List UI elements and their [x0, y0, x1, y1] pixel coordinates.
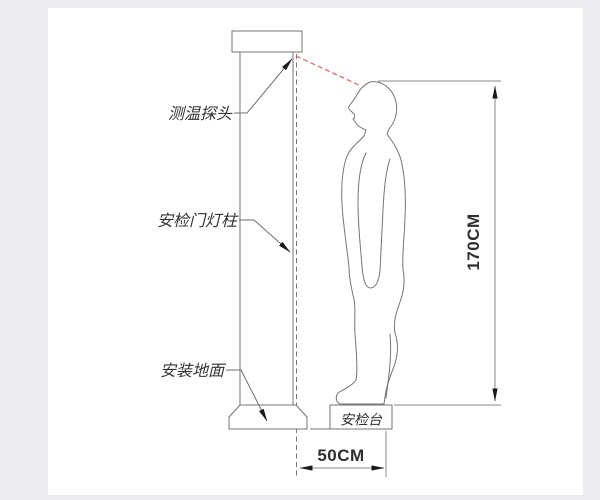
- gate-floor-base: [229, 405, 307, 429]
- height-dimension-text: 170CM: [464, 213, 483, 270]
- gate-top-cap: [232, 31, 302, 52]
- ground-label: 安装地面: [160, 361, 227, 380]
- platform: 安检台: [330, 405, 392, 429]
- pole-label: 安检门灯柱: [157, 211, 239, 230]
- distance-dimension-text: 50CM: [317, 446, 364, 465]
- gate-pole-body: [240, 52, 293, 405]
- diagram-canvas: 安检台 测温探头 安检门灯柱 安装地面 17: [0, 0, 600, 500]
- drawing-sheet: [48, 8, 583, 495]
- probe-label: 测温探头: [168, 104, 233, 123]
- platform-label: 安检台: [340, 413, 383, 429]
- page-background: 安检台 测温探头 安检门灯柱 安装地面 17: [0, 0, 600, 500]
